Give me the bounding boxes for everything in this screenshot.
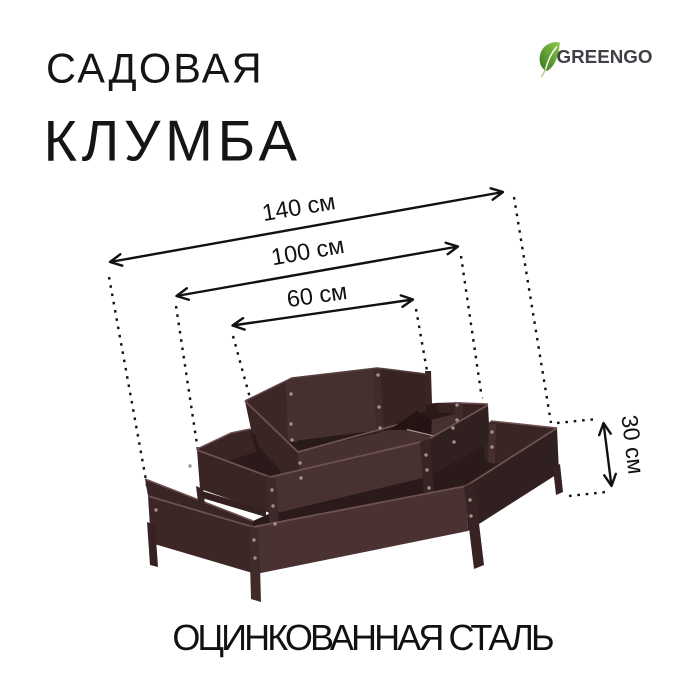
svg-text:КЛУМБА: КЛУМБА [44, 110, 302, 174]
svg-text:GREENGO: GREENGO [557, 46, 653, 67]
svg-text:ОЦИНКОВАННАЯ СТАЛЬ: ОЦИНКОВАННАЯ СТАЛЬ [172, 617, 553, 658]
svg-text:САДОВАЯ: САДОВАЯ [46, 45, 264, 92]
